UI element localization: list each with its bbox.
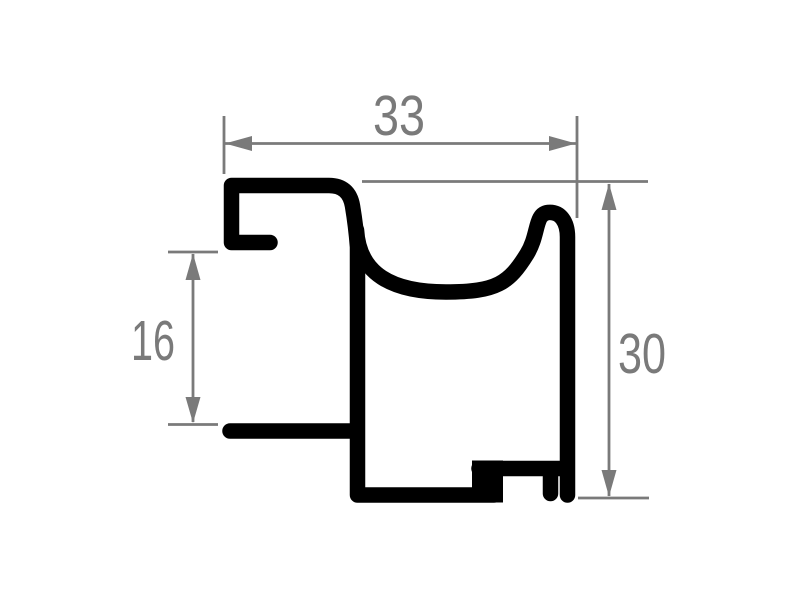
height-dimension-label: 30: [618, 322, 666, 386]
frame-profile-drawing: 33 16 30: [0, 0, 800, 600]
height-arrow-down-icon: [602, 470, 617, 497]
height-arrow-up-icon: [602, 184, 617, 211]
rebate-arrow-down-icon: [186, 397, 201, 423]
width-arrow-left-icon: [225, 136, 252, 151]
profile-slot-left-block: [472, 461, 503, 503]
profile-cross-section: [230, 186, 568, 496]
dimension-lines: [168, 116, 649, 498]
rebate-dimension-label: 16: [131, 309, 175, 373]
dimension-labels: 33 16 30: [131, 84, 666, 386]
profile-cove-and-right-wall: [357, 212, 568, 495]
width-dimension-label: 33: [373, 84, 425, 148]
technical-drawing-canvas: 33 16 30: [0, 0, 800, 600]
width-arrow-right-icon: [549, 136, 576, 151]
rebate-arrow-up-icon: [186, 254, 201, 281]
